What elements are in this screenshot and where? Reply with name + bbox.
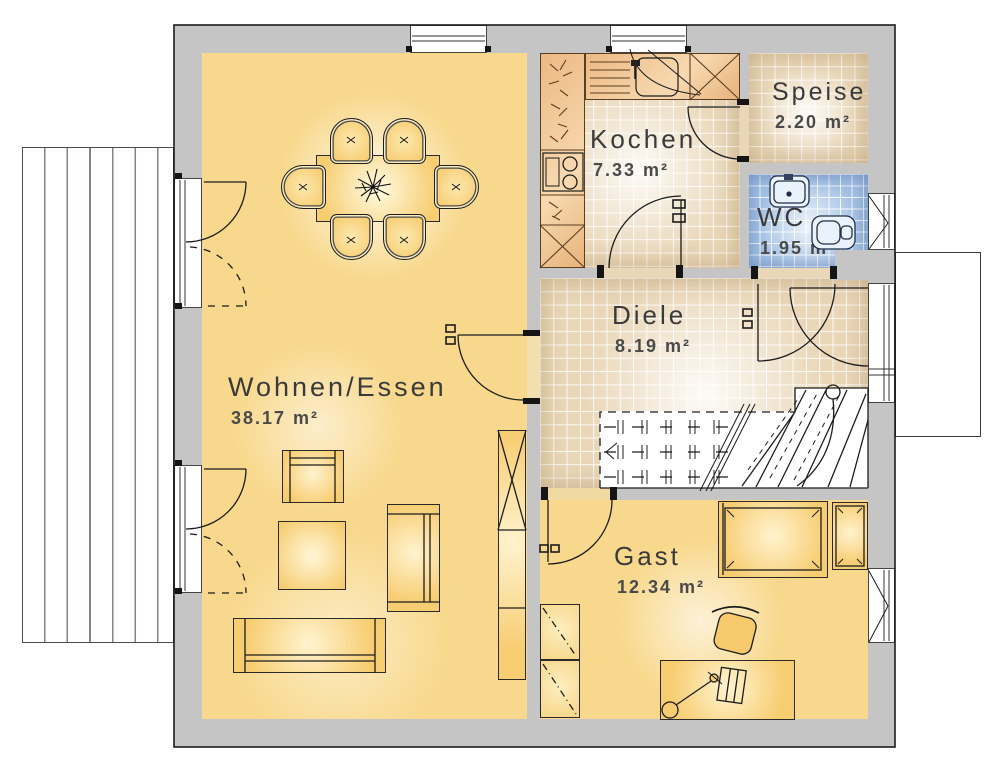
label-gast: Gast 12.34 m² bbox=[614, 541, 705, 598]
floor-plan: Wohnen/Essen 38.17 m² Kochen 7.33 m² Spe… bbox=[0, 0, 996, 768]
window-top-living bbox=[410, 25, 487, 53]
room-diele bbox=[540, 278, 868, 488]
window-wc bbox=[868, 193, 895, 250]
terrace-door-upper bbox=[174, 178, 202, 308]
dining-chair-top-1 bbox=[330, 118, 373, 164]
wall-wohnen-kochen bbox=[527, 53, 540, 334]
terrace-door-lower bbox=[174, 465, 202, 593]
wall-kochen-diele-a bbox=[527, 268, 603, 278]
room-name-wc: WC bbox=[757, 202, 836, 233]
room-name-diele: Diele bbox=[612, 300, 691, 331]
dining-chair-left bbox=[281, 165, 326, 209]
wall-exterior-top bbox=[174, 25, 895, 53]
bed bbox=[718, 501, 828, 578]
terrace-deck bbox=[22, 147, 174, 643]
room-area-speise: 2.20 m² bbox=[775, 112, 866, 133]
sofa-three-seat bbox=[233, 618, 386, 673]
wardrobe-upper bbox=[540, 604, 580, 660]
label-wc: WC 1.95 m² bbox=[757, 202, 836, 259]
threshold-kochen-diele bbox=[603, 268, 678, 278]
side-bed bbox=[832, 502, 868, 570]
armchair bbox=[282, 450, 344, 503]
wall-kochen-wc bbox=[740, 160, 749, 268]
wall-diele-gast-a bbox=[527, 488, 548, 500]
wall-speise-wc bbox=[748, 163, 868, 174]
label-wohnen: Wohnen/Essen 38.17 m² bbox=[228, 372, 447, 429]
room-name-speise: Speise bbox=[772, 78, 866, 107]
wall-kochen-diele-b bbox=[678, 268, 748, 278]
dining-chair-bottom-1 bbox=[330, 214, 373, 260]
label-kochen: Kochen 7.33 m² bbox=[590, 124, 696, 181]
wall-wc-diele-b bbox=[835, 250, 868, 280]
room-name-wohnen: Wohnen/Essen bbox=[228, 372, 447, 403]
room-area-wc: 1.95 m² bbox=[760, 238, 836, 259]
sofa-two-seat bbox=[387, 504, 440, 612]
room-area-gast: 12.34 m² bbox=[617, 577, 705, 598]
threshold-wc-diele bbox=[757, 268, 835, 278]
entrance-porch bbox=[895, 252, 981, 437]
threshold-diele-gast bbox=[548, 488, 612, 500]
room-area-wohnen: 38.17 m² bbox=[231, 408, 447, 429]
desk bbox=[660, 660, 795, 720]
wall-diele-gast-b bbox=[612, 488, 868, 500]
label-diele: Diele 8.19 m² bbox=[612, 300, 691, 357]
coffee-table bbox=[278, 521, 346, 590]
room-name-gast: Gast bbox=[614, 541, 705, 572]
room-area-diele: 8.19 m² bbox=[615, 336, 691, 357]
dining-chair-right bbox=[434, 165, 479, 209]
room-area-kochen: 7.33 m² bbox=[593, 160, 696, 181]
wall-wohnen-diele bbox=[527, 403, 540, 720]
wall-exterior-left bbox=[174, 25, 202, 747]
kitchen-counter-top bbox=[585, 53, 740, 100]
wall-kochen-speise-a bbox=[740, 53, 749, 105]
shelf-cabinet bbox=[498, 430, 526, 680]
label-speise: Speise 2.20 m² bbox=[772, 78, 866, 133]
room-name-kochen: Kochen bbox=[590, 124, 696, 155]
threshold-wohnen-diele bbox=[527, 335, 540, 400]
dining-table bbox=[316, 155, 440, 222]
dining-chair-top-2 bbox=[383, 118, 426, 164]
window-gast bbox=[868, 568, 895, 643]
entrance-door bbox=[868, 283, 895, 403]
wardrobe-lower bbox=[540, 660, 580, 718]
kitchen-counter-left bbox=[540, 53, 585, 268]
window-top-kitchen bbox=[610, 25, 687, 53]
wall-wc-diele-a bbox=[748, 268, 757, 278]
dining-chair-bottom-2 bbox=[383, 214, 426, 260]
threshold-kochen-speise bbox=[740, 105, 749, 160]
wall-exterior-bottom bbox=[174, 719, 895, 747]
